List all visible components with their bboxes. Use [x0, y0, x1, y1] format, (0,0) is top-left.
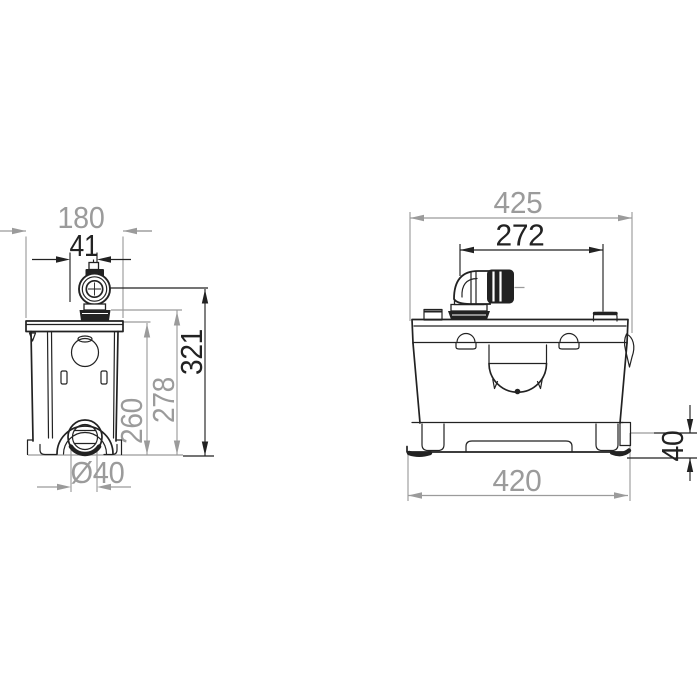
dim-side-outlet-offset: 41: [70, 229, 99, 263]
front-dimensions-black: 272 40: [460, 219, 697, 482]
front-lid-clip-right: [559, 334, 579, 350]
front-vent-block: [424, 310, 442, 321]
side-lid-knob: [72, 336, 99, 367]
side-port-base: [80, 310, 111, 321]
front-discharge-elbow: [448, 270, 514, 320]
side-lid: [26, 321, 123, 332]
front-view-body: [407, 310, 634, 455]
dim-side-outlet-diameter: Ø40: [71, 456, 125, 490]
side-discharge-port: [79, 263, 111, 321]
dim-front-width-overall: 425: [494, 186, 543, 220]
front-lid-clip-left: [456, 334, 476, 350]
dim-front-skirt-height: 40: [656, 431, 690, 462]
dim-side-height-tank: 260: [115, 398, 149, 444]
side-bottom-outlet: [57, 420, 113, 454]
front-lid: [412, 320, 628, 344]
dim-front-base-width: 420: [493, 464, 542, 498]
front-pump-housing: [489, 345, 547, 394]
dim-side-height-total: 321: [175, 329, 209, 375]
front-skirt: [407, 423, 631, 455]
dim-side-height-discharge: 278: [147, 377, 181, 423]
side-view-body: [26, 321, 123, 455]
elbow-pipe: [454, 271, 490, 304]
dim-front-port-spacing: 272: [496, 219, 545, 253]
front-view: 425 420 272 40: [407, 186, 697, 501]
pump-dimension-drawing: 180 260 278 Ø40 41 321: [0, 0, 700, 700]
front-drain-dot: [515, 389, 521, 395]
side-clip-left: [61, 371, 67, 384]
side-view: 180 260 278 Ø40 41 321: [0, 201, 214, 492]
side-clip-right: [101, 371, 107, 384]
dimension-drawing-page: 180 260 278 Ø40 41 321: [0, 0, 700, 700]
